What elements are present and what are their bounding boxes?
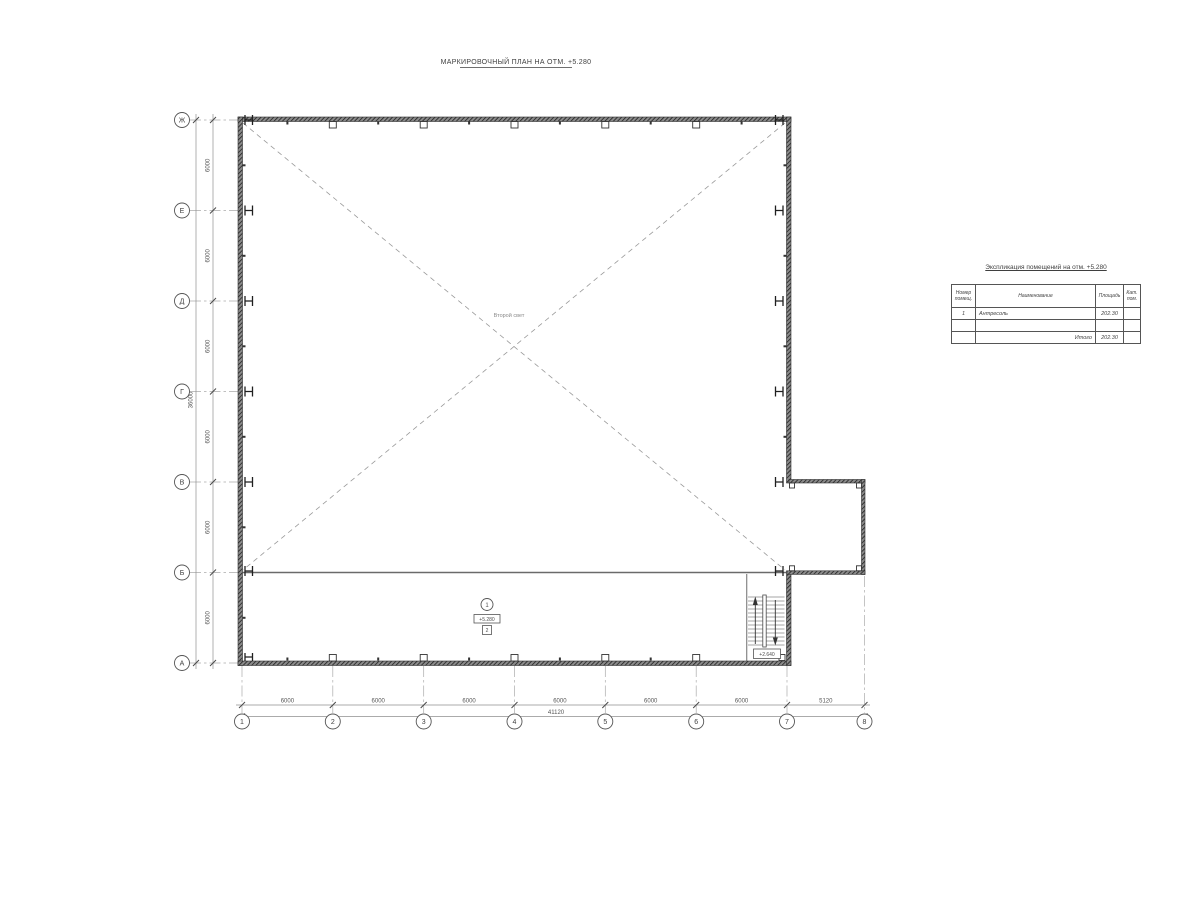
table-total-row: Итого 202.30	[952, 332, 1141, 344]
svg-text:Д: Д	[180, 299, 185, 306]
table-header-row: Номер помещ. Наименование Площадь Кат. п…	[952, 285, 1141, 308]
svg-text:3: 3	[422, 719, 426, 726]
svg-text:4: 4	[513, 719, 517, 726]
cell-room-area: 202.30	[1096, 308, 1124, 320]
cell-total-blank	[952, 332, 976, 344]
cell-room-category	[1124, 308, 1141, 320]
svg-text:8: 8	[863, 719, 867, 726]
svg-text:6: 6	[694, 719, 698, 726]
wall-annex-right	[862, 480, 866, 575]
cell-room-area	[1096, 320, 1124, 332]
drawing-sheet: МАРКИРОВОЧНЫЙ ПЛАН НА ОТМ. +5.280 Второй…	[0, 0, 1200, 900]
svg-text:6000: 6000	[644, 699, 658, 705]
svg-text:6000: 6000	[462, 699, 476, 705]
svg-text:В: В	[180, 480, 185, 487]
svg-text:5120: 5120	[819, 699, 833, 705]
room-schedule-table: Номер помещ. Наименование Площадь Кат. п…	[951, 284, 1141, 344]
total-label: Итого	[976, 332, 1096, 344]
axis-labels-bottom: 1 2 3 4 5 6 7 8	[240, 719, 867, 726]
cell-room-category	[1124, 320, 1141, 332]
cell-total-blank	[1124, 332, 1141, 344]
dim-text-bottom: 6000 6000 6000 6000 6000 6000 5120 41120	[281, 699, 833, 717]
wall-annex-top	[789, 480, 865, 484]
svg-text:Е: Е	[180, 208, 185, 215]
wall-right-lower	[787, 571, 792, 666]
sheet-title: МАРКИРОВОЧНЫЙ ПЛАН НА ОТМ. +5.280	[441, 57, 592, 68]
svg-text:6000: 6000	[206, 158, 212, 172]
building-walls	[238, 117, 865, 666]
svg-text:6000: 6000	[372, 699, 386, 705]
wall-annex-bottom	[787, 571, 865, 575]
stair	[747, 574, 785, 661]
wall-bottom	[238, 661, 791, 666]
cell-room-number	[952, 320, 976, 332]
svg-text:Ж: Ж	[179, 118, 186, 125]
total-area: 202.30	[1096, 332, 1124, 344]
col-header-area: Площадь	[1096, 285, 1124, 308]
wall-right-upper	[787, 117, 792, 483]
room-schedule: Экспликация помещений на отм. +5.280 Ном…	[951, 264, 1141, 344]
col-header-name: Наименование	[976, 285, 1096, 308]
svg-text:6000: 6000	[206, 610, 212, 624]
stair-down-arrow	[773, 600, 778, 646]
wall-midspan-ties	[243, 122, 787, 661]
floor-plan: МАРКИРОВОЧНЫЙ ПЛАН НА ОТМ. +5.280 Второй…	[0, 0, 1200, 900]
table-row	[952, 320, 1141, 332]
svg-text:А: А	[180, 661, 185, 668]
wall-top	[238, 117, 791, 122]
stair-elevation-label: +2.640	[759, 652, 775, 658]
page-title: МАРКИРОВОЧНЫЙ ПЛАН НА ОТМ. +5.280	[441, 57, 592, 66]
svg-text:6000: 6000	[206, 339, 212, 353]
col-header-category: Кат. пом.	[1124, 285, 1141, 308]
svg-text:6000: 6000	[206, 429, 212, 443]
svg-text:Г: Г	[180, 389, 184, 396]
svg-text:6000: 6000	[735, 699, 749, 705]
annex-corner-posts	[790, 483, 862, 571]
wall-left	[238, 117, 243, 666]
cell-room-name: Антресоль	[976, 308, 1096, 320]
room-tag: 1 +5.280 2	[474, 599, 500, 635]
columns-right	[776, 115, 784, 576]
cell-room-name	[976, 320, 1096, 332]
columns-left	[245, 115, 253, 661]
svg-text:5: 5	[603, 719, 607, 726]
svg-text:1: 1	[240, 719, 244, 726]
void-label: Второй свет	[494, 312, 525, 319]
svg-text:6000: 6000	[206, 520, 212, 534]
wall-posts	[329, 122, 785, 662]
svg-text:6000: 6000	[281, 699, 295, 705]
dim-total-bottom: 41120	[548, 710, 565, 716]
cell-room-number: 1	[952, 308, 976, 320]
svg-text:6000: 6000	[206, 248, 212, 262]
svg-text:7: 7	[785, 719, 789, 726]
svg-text:2: 2	[331, 719, 335, 726]
table-row: 1 Антресоль 202.30	[952, 308, 1141, 320]
svg-text:Б: Б	[180, 570, 185, 577]
svg-text:6000: 6000	[553, 699, 567, 705]
col-header-number: Номер помещ.	[952, 285, 976, 308]
stair-mid-wall	[763, 595, 766, 647]
room-elevation: +5.280	[479, 617, 495, 623]
void-cross-lines	[243, 123, 785, 570]
room-schedule-title: Экспликация помещений на отм. +5.280	[951, 264, 1141, 271]
floor-finish-tag: 2	[486, 628, 489, 634]
